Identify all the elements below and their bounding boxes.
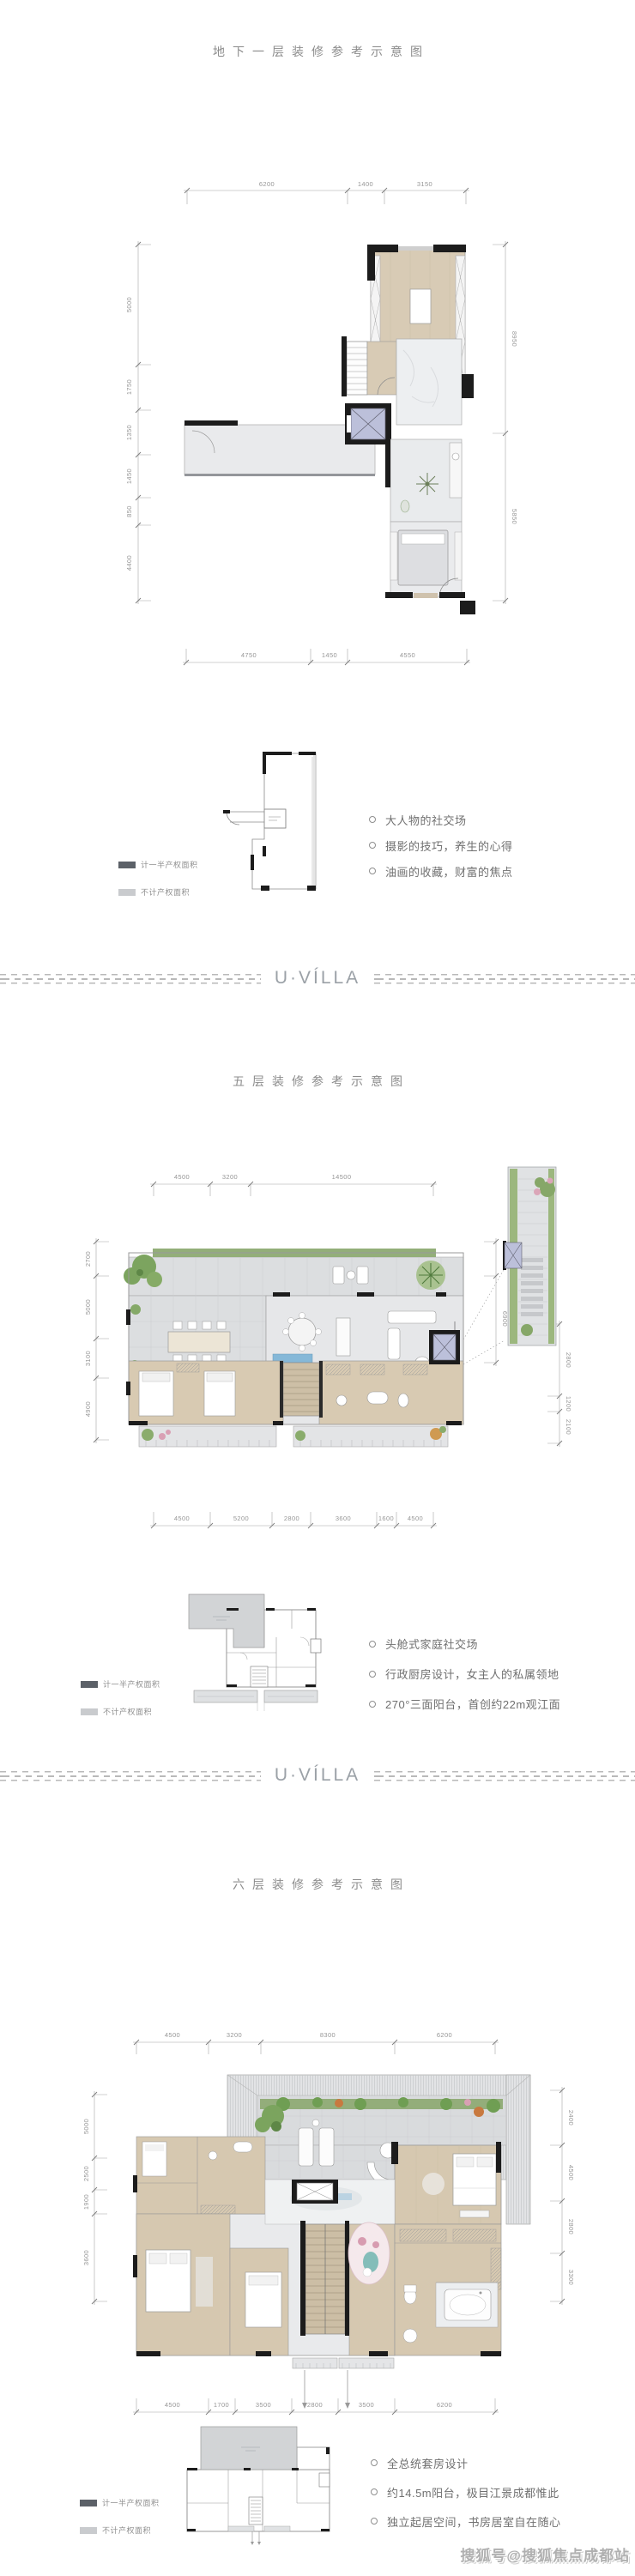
bullet-text: 摄影的技巧，养生的心得: [385, 838, 513, 854]
basement-plan-drawing: [184, 245, 475, 614]
bullet-icon: [369, 816, 376, 823]
dim-label: 2400: [567, 2110, 575, 2126]
sofa: [388, 1311, 436, 1323]
legend-label: 不计产权面积: [103, 1706, 152, 1717]
dim-label: 1700: [214, 2401, 229, 2409]
list-item: 约14.5m阳台，极目江景成都惟此: [371, 2477, 561, 2506]
dim-label: 4750: [241, 651, 257, 659]
legend: 计一半产权面积 不计产权面积: [81, 1678, 160, 1717]
dim-label: 5000: [84, 1299, 92, 1315]
bullet-icon: [371, 2459, 378, 2466]
no-area-swatch: [80, 2527, 97, 2534]
balcony: [339, 2358, 394, 2368]
divider-hatch: [0, 973, 261, 984]
legend-item-half-area: 计一半产权面积: [118, 859, 198, 870]
fifth-floor-keyplan: [180, 1586, 326, 1713]
list-item: 大人物的社交场: [369, 807, 513, 832]
dim-label: 1600: [378, 1515, 394, 1522]
legend-label: 计一半产权面积: [102, 2497, 160, 2508]
down-arrow-icon: [345, 2403, 350, 2409]
list-item: 全总统套房设计: [371, 2448, 561, 2477]
list-item: 独立起居空间，书房居室自在随心: [371, 2506, 561, 2536]
list-item: 行政厨房设计，女主人的私属领地: [369, 1659, 560, 1689]
divider-hatch: [374, 1770, 635, 1781]
list-item: 270°三面阳台，首创约22m观江面: [369, 1689, 560, 1719]
down-arrow-icon: [251, 2542, 254, 2545]
bullet-text: 头舱式家庭社交场: [385, 1636, 478, 1652]
bullet-icon: [369, 1641, 376, 1648]
uvilla-logo: U·VÍLLA: [275, 1765, 360, 1786]
dim-label: 6200: [437, 2031, 452, 2039]
palm-tree: [419, 1263, 443, 1287]
legend-item-half-area: 计一半产权面积: [80, 2497, 160, 2508]
bullet-text: 独立起居空间，书房居室自在随心: [387, 2513, 561, 2530]
dim-label: 4500: [165, 2031, 180, 2039]
fifth-floor-highlights: 头舱式家庭社交场 行政厨房设计，女主人的私属领地 270°三面阳台，首创约22m…: [369, 1629, 560, 1719]
sixth-floor-keyplan: [177, 2422, 340, 2546]
dim-label: 1900: [82, 2194, 90, 2210]
dim-label: 2500: [82, 2166, 90, 2181]
dim-label: 4500: [165, 2401, 180, 2409]
dim-label: 5200: [233, 1515, 249, 1522]
legend-item-no-area: 不计产权面积: [81, 1706, 160, 1717]
balcony: [293, 1426, 448, 1447]
bullet-icon: [369, 842, 376, 849]
dim-label: 1350: [125, 425, 133, 440]
dim-label: 1750: [125, 379, 133, 395]
dim-label: 3300: [567, 2270, 575, 2285]
bullet-icon: [369, 868, 376, 874]
dim-label: 1400: [358, 180, 373, 188]
bullet-text: 约14.5m阳台，极目江景成都惟此: [387, 2484, 559, 2500]
down-arrow-icon: [257, 2542, 261, 2545]
dim-label: 8300: [320, 2031, 336, 2039]
legend-label: 计一半产权面积: [141, 859, 198, 870]
bullet-text: 油画的收藏，财富的焦点: [385, 863, 513, 880]
bullet-text: 270°三面阳台，首创约22m观江面: [385, 1696, 560, 1712]
fifth-floor-plan: 4500 3200 14500 2700 5000 3100 4900 2700…: [0, 1107, 635, 1540]
half-area-swatch: [81, 1681, 98, 1688]
dim-label: 2800: [565, 1352, 572, 1368]
dim-label: 4900: [84, 1401, 92, 1417]
legend: 计一半产权面积 不计产权面积: [118, 859, 198, 898]
dim-label: 6200: [259, 180, 275, 188]
dim-label: 2100: [565, 1419, 572, 1435]
basement-highlights: 大人物的社交场 摄影的技巧，养生的心得 油画的收藏，财富的焦点: [369, 807, 513, 884]
dim-label: 3100: [84, 1351, 92, 1366]
legend-item-no-area: 不计产权面积: [118, 886, 198, 898]
dim-label: 3500: [256, 2401, 271, 2409]
legend-label: 计一半产权面积: [103, 1678, 160, 1690]
bullet-text: 大人物的社交场: [385, 812, 467, 828]
dim-label: 3150: [417, 180, 432, 188]
dim-label: 4400: [125, 555, 133, 571]
list-item: 头舱式家庭社交场: [369, 1629, 560, 1659]
section-title-basement: 地下一层装修参考示意图: [0, 43, 635, 60]
dim-label: 6200: [437, 2401, 452, 2409]
sixth-floor-plan-drawing: [133, 2075, 530, 2409]
dim-label: 8950: [511, 331, 518, 347]
staircase: [283, 1363, 319, 1416]
bullet-icon: [371, 2488, 378, 2495]
dim-label: 2800: [567, 2219, 575, 2234]
dim-label: 850: [125, 505, 133, 517]
dim-label: 2800: [284, 1515, 299, 1522]
fifth-floor-plan-drawing: [124, 1167, 556, 1447]
basement-keyplan: [215, 745, 330, 904]
bullet-icon: [369, 1671, 376, 1678]
dim-label: 1200: [565, 1396, 572, 1412]
dim-label: 4500: [408, 1515, 423, 1522]
legend-item-no-area: 不计产权面积: [80, 2525, 160, 2536]
section-title-fifth-floor: 五层装修参考示意图: [0, 1073, 635, 1090]
dim-label: 3200: [222, 1173, 238, 1181]
half-area-swatch: [80, 2500, 97, 2506]
bullet-text: 行政厨房设计，女主人的私属领地: [385, 1666, 559, 1682]
dim-label: 4500: [174, 1515, 190, 1522]
no-area-swatch: [81, 1708, 98, 1715]
dim-label: 4500: [174, 1173, 190, 1181]
section-title-sixth-floor: 六层装修参考示意图: [0, 1876, 635, 1893]
dim-label: 3600: [336, 1515, 351, 1522]
keyplan-terrace: [201, 2427, 297, 2470]
dim-label: 5000: [125, 297, 133, 312]
article-page: 地下一层装修参考示意图 6200 1400 3150 5000 1750 135…: [0, 0, 635, 2576]
half-area-swatch: [118, 862, 136, 868]
keyplan-walls: [223, 752, 316, 891]
dim-label: 1450: [125, 469, 133, 484]
dim-label: 5850: [511, 509, 518, 524]
dim-label: 3200: [227, 2031, 242, 2039]
dim-label: 3600: [82, 2250, 90, 2265]
dim-label: 2700: [84, 1251, 92, 1267]
bullet-icon: [371, 2518, 378, 2525]
dim-label: 4500: [567, 2165, 575, 2180]
section-divider: U·VÍLLA: [0, 967, 635, 989]
lounger: [299, 2128, 313, 2166]
lounger: [319, 2128, 334, 2166]
divider-hatch: [0, 1770, 261, 1781]
divider-hatch: [374, 973, 635, 984]
legend-label: 不计产权面积: [141, 886, 190, 898]
dim-label: 2800: [307, 2401, 323, 2409]
section-divider: U·VÍLLA: [0, 1764, 635, 1787]
legend: 计一半产权面积 不计产权面积: [80, 2497, 160, 2536]
watermark: 搜狐号@搜狐焦点成都站: [460, 2543, 630, 2565]
uvilla-logo: U·VÍLLA: [275, 968, 360, 989]
basement-floor-plan: 6200 1400 3150 5000 1750 1350 1450 850 4…: [0, 120, 635, 678]
bullet-icon: [369, 1701, 376, 1708]
sixth-floor-highlights: 全总统套房设计 约14.5m阳台，极目江景成都惟此 独立起居空间，书房居室自在随…: [371, 2448, 561, 2536]
dim-label: 5000: [82, 2119, 90, 2134]
list-item: 摄影的技巧，养生的心得: [369, 832, 513, 858]
dim-label: 14500: [332, 1173, 352, 1181]
dim-label: 1450: [322, 651, 337, 659]
no-area-swatch: [118, 889, 136, 896]
bullet-text: 全总统套房设计: [387, 2455, 469, 2471]
dim-label: 4550: [400, 651, 415, 659]
list-item: 油画的收藏，财富的焦点: [369, 858, 513, 884]
dim-label: 3500: [359, 2401, 374, 2409]
sixth-floor-plan: 4500 3200 8300 6200 5000 2500 1900 3600 …: [0, 1999, 635, 2446]
dining-table: [168, 1332, 230, 1352]
legend-item-half-area: 计一半产权面积: [81, 1678, 160, 1690]
legend-label: 不计产权面积: [102, 2525, 151, 2536]
